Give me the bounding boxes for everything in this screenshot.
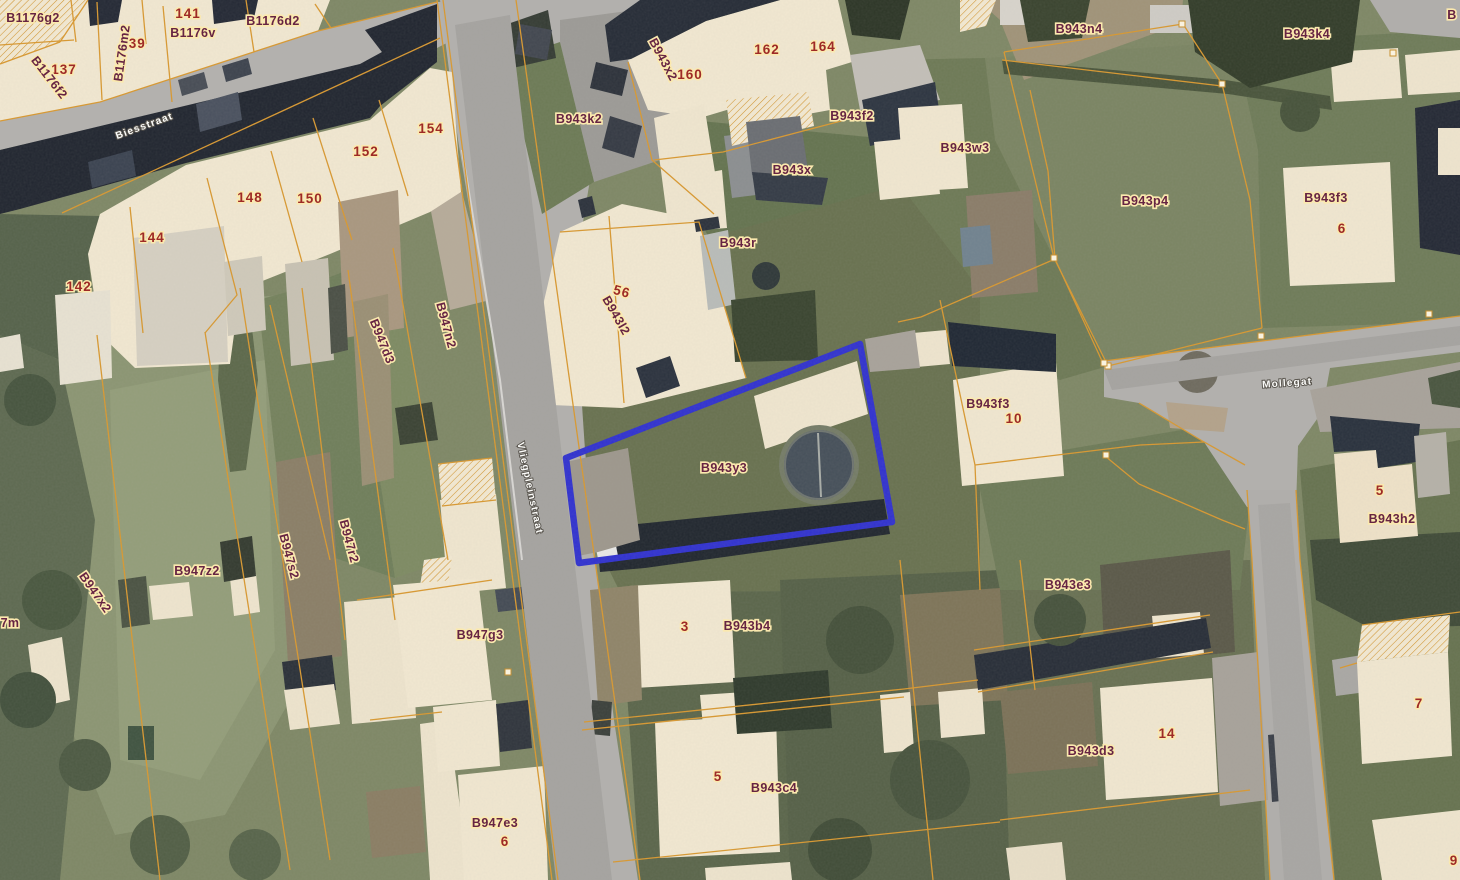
svg-text:14: 14: [1158, 726, 1175, 741]
svg-text:B947g3: B947g3: [457, 628, 504, 642]
svg-text:B947e3: B947e3: [472, 816, 518, 830]
svg-text:152: 152: [353, 144, 379, 159]
svg-text:148: 148: [237, 190, 263, 205]
svg-text:B943e3: B943e3: [1045, 578, 1091, 592]
svg-text:B1176g2: B1176g2: [6, 11, 60, 25]
svg-text:B943x: B943x: [773, 163, 812, 177]
svg-text:5: 5: [714, 769, 723, 784]
svg-text:B943r: B943r: [720, 236, 757, 250]
svg-text:B943n4: B943n4: [1056, 22, 1103, 36]
svg-text:160: 160: [677, 67, 703, 82]
svg-text:B943p4: B943p4: [1122, 194, 1169, 208]
svg-text:B1176v: B1176v: [170, 26, 216, 40]
svg-text:142: 142: [66, 279, 92, 294]
svg-text:154: 154: [418, 121, 444, 136]
svg-text:B1176d2: B1176d2: [246, 14, 300, 28]
svg-text:B: B: [1447, 8, 1456, 22]
svg-text:B943k4: B943k4: [1284, 27, 1330, 41]
svg-text:B943k2: B943k2: [556, 112, 602, 126]
svg-text:B947z2: B947z2: [174, 564, 220, 578]
svg-text:B943f2: B943f2: [830, 109, 873, 123]
svg-text:B943h2: B943h2: [1369, 512, 1416, 526]
svg-text:5: 5: [1376, 483, 1385, 498]
svg-text:3: 3: [681, 619, 690, 634]
svg-text:6: 6: [1338, 221, 1347, 236]
svg-text:162: 162: [754, 42, 780, 57]
svg-text:164: 164: [810, 39, 836, 54]
svg-text:B943w3: B943w3: [941, 141, 990, 155]
svg-text:7m: 7m: [1, 616, 20, 630]
svg-text:144: 144: [139, 230, 165, 245]
svg-text:B943c4: B943c4: [751, 781, 797, 795]
svg-text:B943y3: B943y3: [701, 461, 747, 475]
svg-text:9: 9: [1450, 853, 1459, 868]
svg-text:6: 6: [501, 834, 510, 849]
svg-text:141: 141: [175, 6, 201, 21]
svg-text:B943d3: B943d3: [1068, 744, 1115, 758]
svg-text:10: 10: [1005, 411, 1022, 426]
svg-text:B943f3: B943f3: [966, 397, 1009, 411]
svg-text:B943b4: B943b4: [724, 619, 771, 633]
svg-text:7: 7: [1415, 696, 1424, 711]
svg-text:B943f3: B943f3: [1304, 191, 1347, 205]
svg-text:150: 150: [297, 191, 323, 206]
